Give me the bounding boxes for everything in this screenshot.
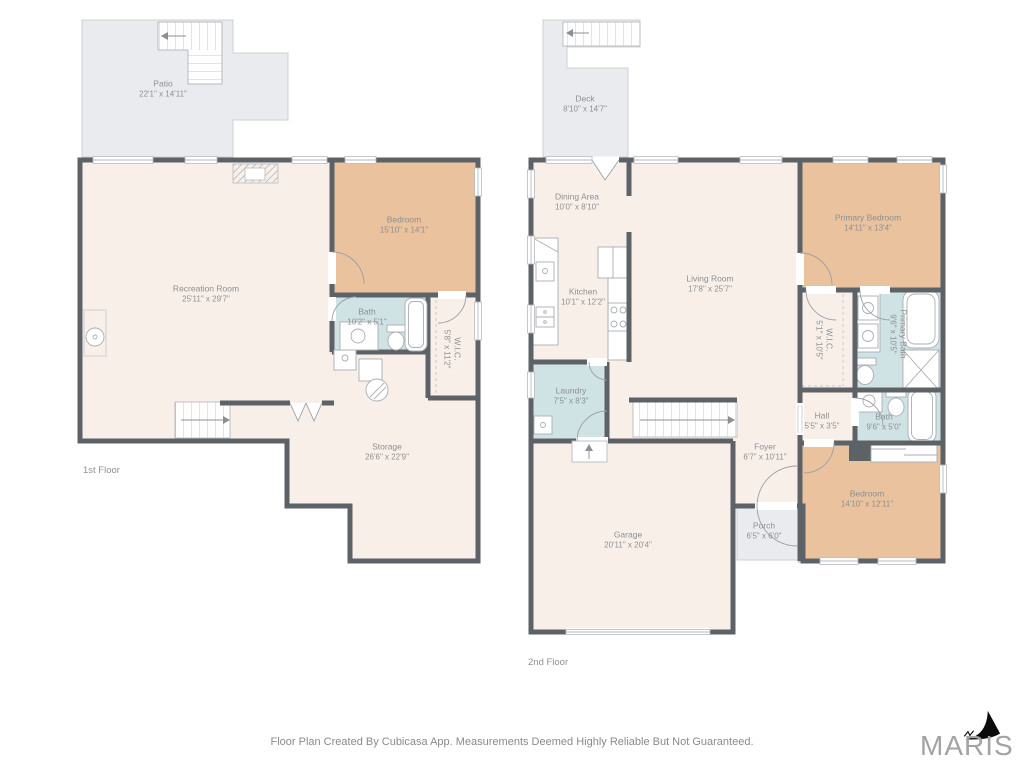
room-label-bath-2f: Bath 9'6" x 5'0"	[867, 411, 902, 432]
first-floor-label: 1st Floor	[83, 465, 120, 476]
second-floor-stairs	[633, 402, 737, 437]
room-label-garage: Garage 20'11" x 20'4"	[604, 529, 652, 550]
room-label-bath-1f: Bath 10'2" x 5'1"	[347, 306, 386, 327]
floor-plan-drawing	[0, 0, 1024, 768]
maris-logo-text: MARIS	[920, 730, 1014, 762]
room-label-wic-2f: W.I.C. 5'1" x 10'5"	[813, 320, 834, 359]
room-label-kitchen: Kitchen 10'1" x 12'2"	[561, 286, 605, 307]
room-label-primary-bedroom: Primary Bedroom 14'11" x 13'4"	[835, 212, 901, 233]
room-label-dining-area: Dining Area 10'0" x 8'10"	[555, 191, 599, 212]
floor-plan-page: Patio 22'1" x 14'11" Recreation Room 25'…	[0, 0, 1024, 768]
room-label-wic-1f: W.I.C. 5'8" x 11'2"	[441, 330, 462, 369]
room-label-living-room: Living Room 17'8" x 25'7"	[686, 273, 733, 294]
room-label-bedroom-1f: Bedroom 15'10" x 14'1"	[380, 214, 428, 235]
garage-entry-step	[572, 441, 607, 462]
room-label-porch: Porch 6'5" x 6'0"	[747, 520, 782, 541]
maris-logo: MARIS	[918, 704, 1024, 766]
disclaimer-text: Floor Plan Created By Cubicasa App. Meas…	[0, 736, 1024, 748]
room-label-deck: Deck 8'10" x 14'7"	[563, 93, 607, 114]
deck-shape	[543, 20, 640, 157]
room-label-hall: Hall 5'5" x 3'5"	[805, 410, 840, 431]
second-floor-label: 2nd Floor	[528, 657, 568, 668]
room-label-primary-bath: Primary Bath 9'6" x 10'5"	[887, 309, 908, 358]
room-label-foyer: Foyer 6'7" x 10'11"	[743, 441, 786, 462]
fireplace	[233, 164, 278, 183]
room-label-storage: Storage 26'6" x 22'9"	[365, 441, 409, 462]
room-label-patio: Patio 22'1" x 14'11"	[139, 78, 187, 99]
first-floor-stairs	[175, 402, 230, 438]
room-label-bedroom-2f: Bedroom 14'10" x 12'11"	[841, 488, 893, 509]
garage-door	[566, 628, 710, 636]
deck-stairs	[563, 22, 640, 46]
first-floor-plan	[80, 20, 482, 561]
room-label-recreation-room: Recreation Room 25'11" x 29'7"	[173, 283, 239, 304]
room-label-laundry: Laundry 7'5" x 8'3"	[554, 385, 589, 406]
laundry-fixtures	[534, 416, 552, 434]
